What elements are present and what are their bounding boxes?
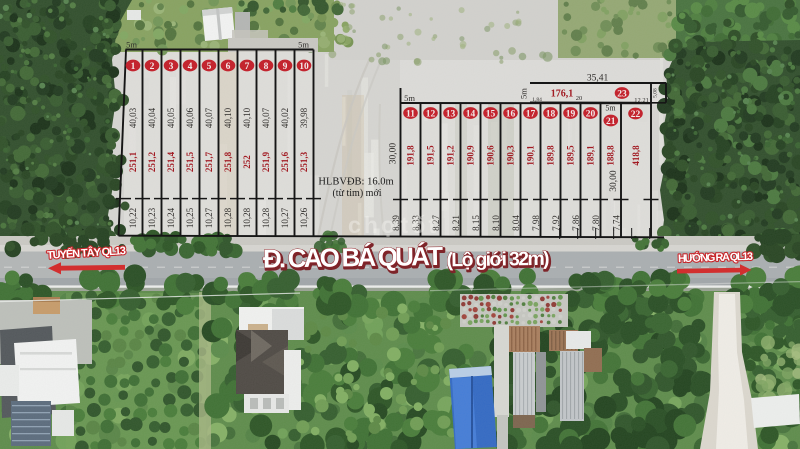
svg-text:30,00: 30,00 — [389, 143, 399, 165]
svg-text:15: 15 — [486, 109, 496, 119]
svg-text:40,02: 40,02 — [280, 108, 290, 128]
svg-text:(từ tim) mới: (từ tim) mới — [332, 188, 381, 199]
svg-text:189,8: 189,8 — [545, 145, 555, 166]
svg-text:1: 1 — [131, 62, 136, 72]
svg-text:12: 12 — [426, 109, 436, 119]
svg-text:10,28: 10,28 — [242, 207, 252, 228]
svg-text:5m: 5m — [605, 104, 616, 113]
svg-text:35,41: 35,41 — [587, 74, 609, 84]
svg-text:13: 13 — [446, 109, 456, 119]
svg-text:10: 10 — [299, 62, 309, 72]
svg-text:176,1: 176,1 — [551, 89, 574, 100]
svg-text:190,6: 190,6 — [485, 145, 495, 166]
svg-text:20: 20 — [576, 95, 583, 102]
svg-text:20: 20 — [586, 109, 596, 119]
svg-text:5m: 5m — [298, 40, 309, 50]
svg-text:39,98: 39,98 — [299, 107, 309, 128]
svg-text:10,23: 10,23 — [147, 207, 157, 228]
svg-text:251,4: 251,4 — [166, 151, 176, 172]
svg-text:8: 8 — [264, 62, 269, 72]
svg-text:5,08: 5,08 — [653, 88, 659, 98]
svg-text:10,22: 10,22 — [128, 208, 138, 228]
svg-text:252: 252 — [242, 155, 252, 169]
svg-text:190,1: 190,1 — [525, 145, 535, 166]
svg-text:418,8: 418,8 — [631, 145, 641, 166]
svg-text:251,7: 251,7 — [204, 151, 214, 172]
svg-text:189,5: 189,5 — [565, 145, 575, 166]
svg-text:40,06: 40,06 — [185, 107, 195, 128]
svg-text:19: 19 — [566, 109, 576, 119]
svg-text:190,3: 190,3 — [505, 145, 515, 166]
svg-text:5m: 5m — [519, 88, 529, 99]
svg-text:12,21: 12,21 — [634, 97, 649, 104]
svg-text:18: 18 — [546, 109, 556, 119]
svg-text:40,07: 40,07 — [204, 107, 214, 128]
svg-text:23: 23 — [617, 89, 627, 99]
svg-text:251,6: 251,6 — [280, 151, 290, 172]
svg-text:251,8: 251,8 — [223, 151, 233, 172]
svg-text:189,1: 189,1 — [585, 145, 595, 166]
svg-text:10,28: 10,28 — [223, 207, 233, 228]
svg-text:5m: 5m — [404, 93, 415, 103]
svg-text:251,1: 251,1 — [128, 151, 138, 172]
svg-text:40,05: 40,05 — [166, 107, 176, 128]
svg-text:190,9: 190,9 — [465, 145, 475, 166]
svg-text:10,28: 10,28 — [261, 207, 271, 228]
svg-text:Đ. CAO BÁ QUÁT: Đ. CAO BÁ QUÁT — [263, 241, 444, 274]
svg-text:2: 2 — [150, 62, 155, 72]
svg-text:9: 9 — [283, 62, 288, 72]
svg-text:HƯỚNG RA QL13: HƯỚNG RA QL13 — [678, 250, 753, 265]
svg-text:8,15: 8,15 — [471, 215, 481, 231]
svg-text:251,3: 251,3 — [299, 151, 309, 172]
svg-text:251,9: 251,9 — [261, 151, 271, 172]
svg-text:7,92: 7,92 — [551, 215, 561, 231]
svg-text:188,8: 188,8 — [606, 145, 616, 166]
svg-text:191,2: 191,2 — [445, 145, 455, 166]
svg-text:22: 22 — [631, 110, 641, 120]
svg-text:191,8: 191,8 — [405, 145, 415, 166]
svg-text:3: 3 — [169, 62, 174, 72]
svg-text:7,74: 7,74 — [612, 215, 622, 231]
svg-text:10,25: 10,25 — [185, 207, 195, 228]
svg-text:5: 5 — [207, 62, 212, 72]
svg-text:6: 6 — [226, 62, 231, 72]
svg-text:16: 16 — [506, 109, 516, 119]
svg-text:7,80: 7,80 — [591, 215, 601, 231]
svg-text:30,00: 30,00 — [609, 170, 619, 192]
svg-text:251,5: 251,5 — [185, 151, 195, 172]
svg-text:14: 14 — [466, 109, 476, 119]
svg-text:HLBVĐB: 16.0m: HLBVĐB: 16.0m — [318, 177, 393, 188]
svg-text:4: 4 — [188, 62, 193, 72]
svg-text:8,10: 8,10 — [491, 215, 501, 231]
svg-text:40,10: 40,10 — [242, 107, 252, 128]
svg-text:10,27: 10,27 — [280, 207, 290, 228]
svg-text:191,5: 191,5 — [425, 145, 435, 166]
svg-text:40,10: 40,10 — [223, 107, 233, 128]
svg-text:7,86: 7,86 — [571, 215, 581, 231]
svg-text:8,21: 8,21 — [451, 215, 461, 231]
svg-text:(Lộ giới 32m): (Lộ giới 32m) — [446, 248, 549, 272]
svg-text:17: 17 — [526, 109, 536, 119]
svg-text:7,98: 7,98 — [531, 215, 541, 231]
svg-text:40,03: 40,03 — [128, 107, 138, 128]
svg-text:5m: 5m — [126, 40, 137, 50]
svg-text:21: 21 — [606, 117, 616, 127]
svg-text:10,26: 10,26 — [299, 207, 309, 228]
svg-text:40,04: 40,04 — [147, 107, 157, 128]
svg-text:40,07: 40,07 — [261, 107, 271, 128]
svg-text:11: 11 — [406, 109, 415, 119]
svg-text:8,04: 8,04 — [511, 215, 521, 231]
svg-text:7: 7 — [245, 62, 250, 72]
svg-text:10,24: 10,24 — [166, 207, 176, 228]
svg-text:251,2: 251,2 — [147, 151, 157, 172]
svg-text:10,27: 10,27 — [204, 207, 214, 228]
svg-text:1,84: 1,84 — [532, 97, 542, 103]
